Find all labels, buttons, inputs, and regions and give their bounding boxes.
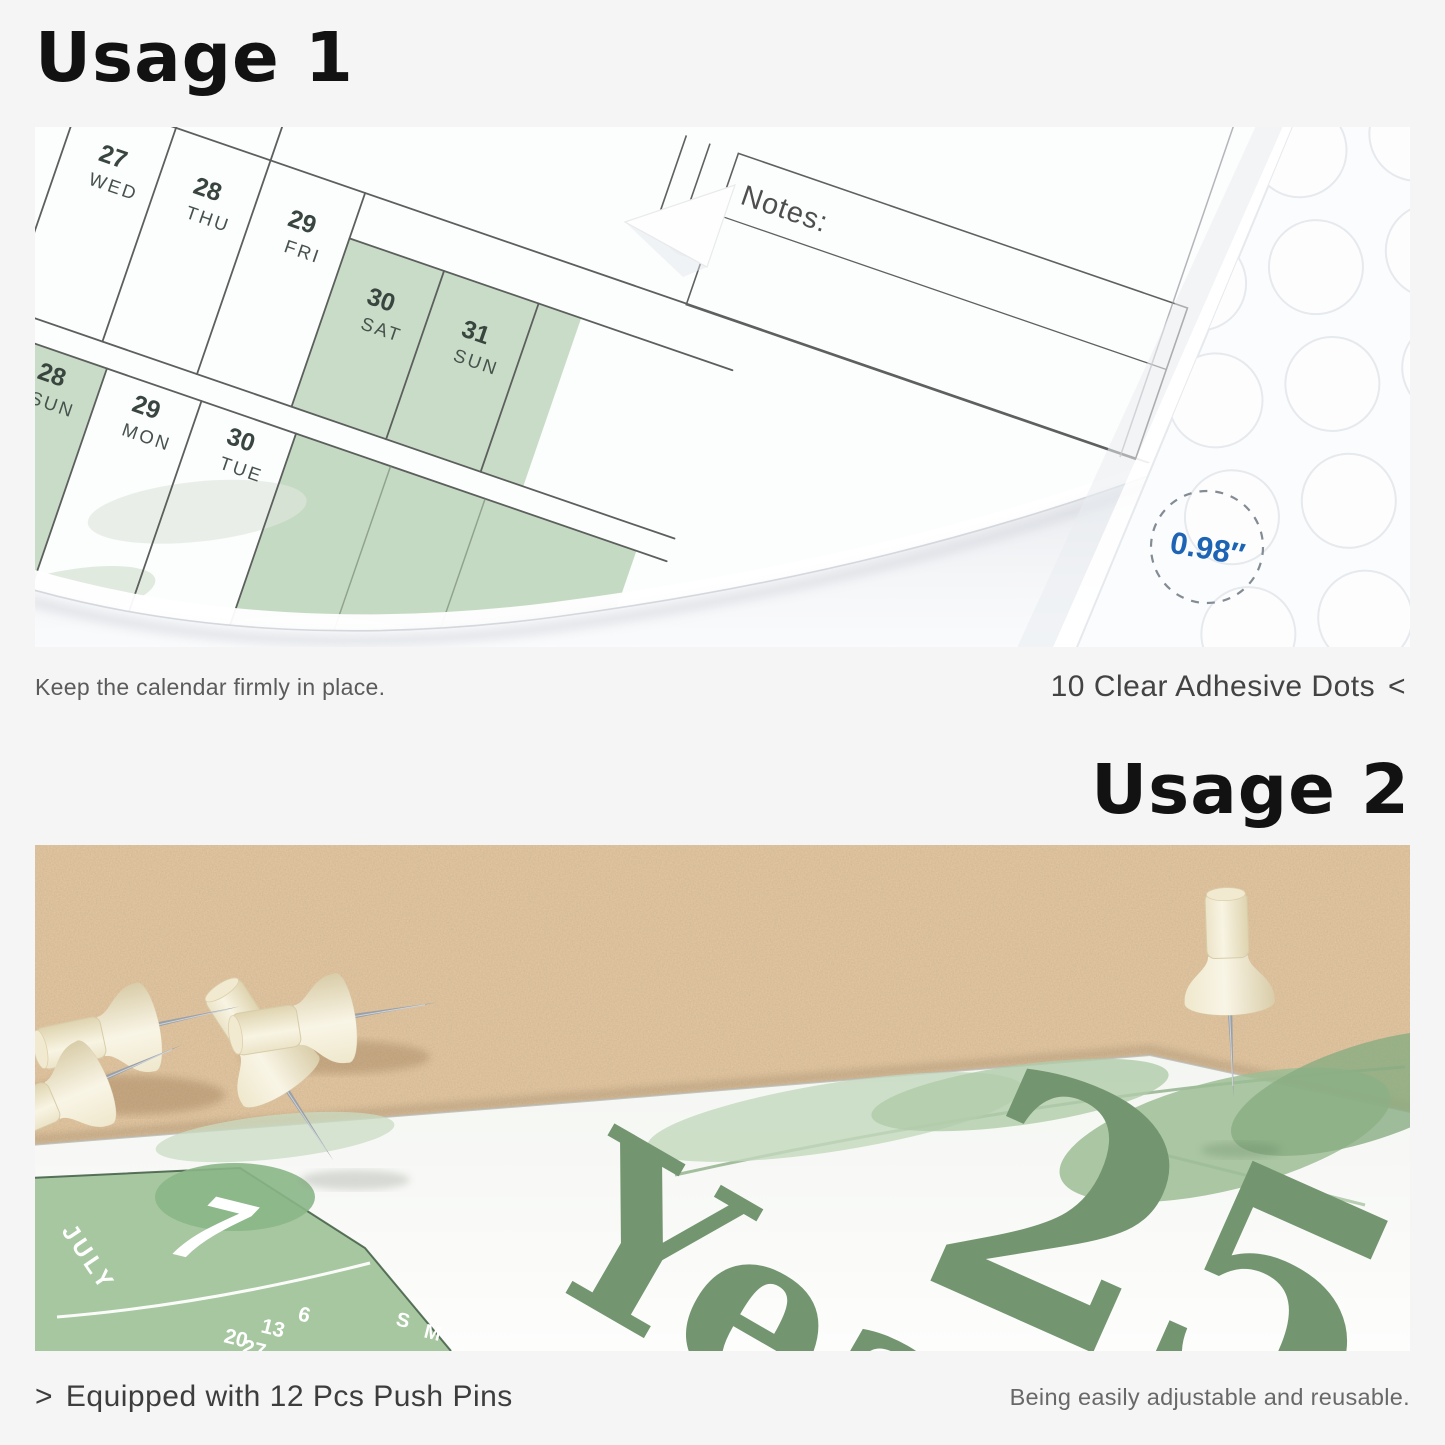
usage1-caption-right: 10 Clear Adhesive Dots < [1051,670,1410,704]
usage2-heading: Usage 2 [1091,756,1410,825]
usage2-photo: 25 Yea 7 JULY 6 13 20 27 S M [35,845,1410,1351]
usage1-heading: Usage 1 [35,24,354,93]
usage1-photo-graphic: Notes: 27 WED 28 THU 29 FRI 30 SAT 31 SU… [35,127,1410,647]
usage2-caption-left-text: Equipped with 12 Pcs Push Pins [66,1380,513,1413]
product-infographic: Usage 1 [0,0,1445,1445]
right-chevron-icon: > [35,1380,53,1414]
usage1-photo: Notes: 27 WED 28 THU 29 FRI 30 SAT 31 SU… [35,127,1410,647]
usage2-caption-left: > Equipped with 12 Pcs Push Pins [35,1380,513,1414]
left-chevron-icon: < [1388,670,1406,704]
usage2-caption-right: Being easily adjustable and reusable. [1010,1384,1410,1411]
usage1-caption-right-text: 10 Clear Adhesive Dots [1051,670,1376,703]
usage2-photo-graphic: 25 Yea 7 JULY 6 13 20 27 S M [35,845,1410,1351]
usage2-captions: > Equipped with 12 Pcs Push Pins Being e… [35,1366,1410,1428]
usage1-caption-left: Keep the calendar firmly in place. [35,674,385,701]
usage1-captions: Keep the calendar firmly in place. 10 Cl… [35,658,1410,716]
